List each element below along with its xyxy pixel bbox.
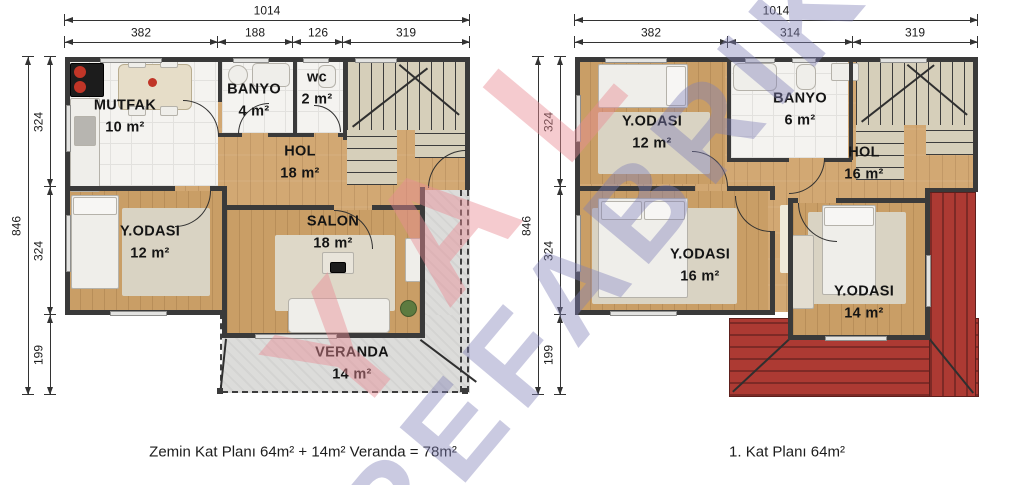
caption-first-floor: 1. Kat Planı 64m² bbox=[729, 444, 845, 461]
dim-tick bbox=[22, 394, 34, 395]
dim-segment bbox=[50, 315, 51, 395]
window bbox=[355, 58, 397, 63]
dim-tick bbox=[22, 56, 34, 57]
dim-segment bbox=[560, 187, 561, 315]
window bbox=[605, 58, 667, 63]
sofa bbox=[288, 298, 390, 333]
room-label-yodasi1: Y.ODASI 12 m² bbox=[622, 111, 682, 155]
dim-segment bbox=[575, 42, 728, 43]
room-area: 18 m² bbox=[280, 163, 319, 185]
dim-label: 382 bbox=[638, 26, 664, 39]
dim-segment bbox=[560, 57, 561, 187]
room-name: Y.ODASI bbox=[120, 221, 180, 243]
floor-plan-sheet: MUTFAK 10 m² BANYO 4 m² wc 2 m² HOL 18 m… bbox=[0, 0, 1024, 485]
dim-total-height bbox=[28, 57, 29, 395]
room-name: wc bbox=[301, 67, 332, 89]
veranda-post bbox=[217, 388, 223, 394]
room-name: HOL bbox=[280, 141, 319, 163]
wall bbox=[836, 198, 930, 203]
window bbox=[233, 58, 269, 63]
dim-tick bbox=[217, 36, 218, 48]
room-area: 18 m² bbox=[307, 233, 359, 255]
room-area: 14 m² bbox=[315, 364, 389, 386]
window bbox=[255, 334, 337, 339]
room-name: VERANDA bbox=[315, 342, 389, 364]
wall bbox=[973, 57, 978, 192]
wall bbox=[222, 205, 334, 210]
dim-label: 382 bbox=[128, 26, 154, 39]
dim-segment bbox=[343, 42, 470, 43]
room-area: 16 m² bbox=[670, 266, 730, 288]
dim-tick bbox=[554, 56, 566, 57]
dim-tick bbox=[532, 394, 544, 395]
bath-sink bbox=[831, 63, 859, 81]
room-label-salon: SALON 18 m² bbox=[307, 211, 359, 255]
dim-total-width bbox=[65, 20, 470, 21]
room-label-hol: HOL 16 m² bbox=[844, 142, 883, 186]
room-label-yodasi3: Y.ODASI 14 m² bbox=[834, 281, 894, 325]
dim-tick bbox=[44, 186, 56, 187]
dim-tick bbox=[342, 36, 343, 48]
dim-label: 188 bbox=[242, 26, 268, 39]
window bbox=[926, 255, 931, 307]
dim-tick bbox=[977, 36, 978, 48]
pillow bbox=[644, 201, 685, 220]
window bbox=[110, 311, 167, 316]
pillow bbox=[666, 66, 686, 106]
room-name: BANYO bbox=[773, 88, 827, 110]
dim-label: 324 bbox=[32, 109, 45, 135]
window bbox=[66, 105, 71, 152]
dim-tick bbox=[292, 36, 293, 48]
dim-segment bbox=[65, 42, 218, 43]
room-name: Y.ODASI bbox=[622, 111, 682, 133]
wall bbox=[343, 60, 347, 140]
dim-tick bbox=[469, 36, 470, 48]
toilet bbox=[796, 64, 816, 90]
room-area: 6 m² bbox=[773, 110, 827, 132]
veranda-dashed-edge bbox=[460, 190, 462, 392]
veranda-post bbox=[462, 388, 468, 394]
dim-segment bbox=[50, 57, 51, 187]
dim-label: 324 bbox=[542, 109, 555, 135]
laptop bbox=[330, 262, 346, 273]
stove-burner bbox=[74, 81, 86, 93]
wall bbox=[372, 205, 425, 210]
dim-segment bbox=[560, 315, 561, 395]
veranda-dashed-edge bbox=[467, 190, 469, 392]
dim-tick bbox=[64, 36, 65, 48]
window bbox=[792, 58, 816, 63]
dim-segment bbox=[728, 42, 853, 43]
window bbox=[100, 58, 162, 63]
room-area: 12 m² bbox=[622, 133, 682, 155]
wall bbox=[727, 186, 775, 191]
room-name: Y.ODASI bbox=[834, 281, 894, 303]
dim-tick bbox=[574, 36, 575, 48]
wall bbox=[727, 60, 731, 162]
room-name: BANYO bbox=[227, 79, 281, 101]
wall bbox=[930, 188, 978, 192]
wall bbox=[293, 60, 297, 137]
room-area: 16 m² bbox=[844, 164, 883, 186]
room-name: SALON bbox=[307, 211, 359, 233]
dim-tick bbox=[574, 14, 575, 26]
window bbox=[576, 95, 581, 142]
wall bbox=[788, 198, 798, 203]
bathtub bbox=[733, 63, 777, 91]
dim-total-height bbox=[538, 57, 539, 395]
window bbox=[66, 215, 71, 272]
wall bbox=[770, 231, 775, 315]
stairs-lower-flight bbox=[347, 130, 397, 185]
window bbox=[825, 336, 887, 341]
dim-label: 1014 bbox=[251, 4, 284, 17]
dim-segment bbox=[50, 187, 51, 315]
room-name: HOL bbox=[844, 142, 883, 164]
room-name: MUTFAK bbox=[94, 95, 156, 117]
room-area: 4 m² bbox=[227, 101, 281, 123]
dim-segment bbox=[218, 42, 293, 43]
dim-tick bbox=[44, 314, 56, 315]
dim-label: 319 bbox=[902, 26, 928, 39]
wall bbox=[218, 60, 222, 102]
pillow bbox=[601, 201, 642, 220]
room-area: 10 m² bbox=[94, 117, 156, 139]
armchair bbox=[405, 238, 421, 282]
dim-tick bbox=[469, 14, 470, 26]
stairs-landing bbox=[926, 125, 973, 155]
room-label-yodasi: Y.ODASI 12 m² bbox=[120, 221, 180, 265]
dim-label: 846 bbox=[10, 213, 23, 239]
caption-ground-floor: Zemin Kat Planı 64m² + 14m² Veranda = 78… bbox=[149, 444, 457, 461]
pillow bbox=[73, 197, 117, 215]
room-area: 2 m² bbox=[301, 89, 332, 111]
room-name: Y.ODASI bbox=[670, 244, 730, 266]
dim-label: 324 bbox=[542, 238, 555, 264]
wall bbox=[268, 133, 314, 137]
dim-label: 126 bbox=[305, 26, 331, 39]
dim-total-width bbox=[575, 20, 978, 21]
dim-label: 314 bbox=[777, 26, 803, 39]
wall bbox=[575, 186, 695, 191]
window bbox=[880, 58, 927, 63]
window bbox=[745, 58, 775, 63]
wall bbox=[788, 203, 793, 340]
dim-tick bbox=[64, 14, 65, 26]
room-label-mutfak: MUTFAK 10 m² bbox=[94, 95, 156, 139]
veranda-dashed-edge bbox=[222, 391, 468, 393]
chair bbox=[160, 106, 178, 116]
stove-burner bbox=[74, 66, 86, 78]
dim-tick bbox=[44, 56, 56, 57]
veranda-slab-side bbox=[425, 190, 470, 315]
kitchen-sink bbox=[74, 116, 96, 146]
dim-tick bbox=[977, 14, 978, 26]
dim-label: 1014 bbox=[760, 4, 793, 17]
dim-tick bbox=[727, 36, 728, 48]
wall bbox=[338, 133, 347, 137]
dim-tick bbox=[532, 56, 544, 57]
room-label-wc: wc 2 m² bbox=[301, 67, 332, 111]
wall bbox=[727, 158, 789, 162]
room-label-banyo: BANYO 6 m² bbox=[773, 88, 827, 132]
dim-tick bbox=[852, 36, 853, 48]
room-area: 12 m² bbox=[120, 243, 180, 265]
window bbox=[610, 311, 677, 316]
closet bbox=[792, 235, 814, 309]
wall bbox=[65, 186, 175, 191]
plant bbox=[400, 300, 417, 317]
dim-tick bbox=[554, 394, 566, 395]
room-label-veranda: VERANDA 14 m² bbox=[315, 342, 389, 386]
room-label-yodasi2: Y.ODASI 16 m² bbox=[670, 244, 730, 288]
stairs bbox=[347, 62, 465, 130]
window bbox=[303, 58, 329, 63]
dim-segment bbox=[293, 42, 343, 43]
dim-label: 199 bbox=[542, 342, 555, 368]
window bbox=[576, 215, 581, 272]
table-decor bbox=[148, 78, 157, 87]
dim-tick bbox=[554, 314, 566, 315]
room-label-banyo: BANYO 4 m² bbox=[227, 79, 281, 123]
dim-label: 199 bbox=[32, 342, 45, 368]
dim-label: 319 bbox=[393, 26, 419, 39]
dim-tick bbox=[44, 394, 56, 395]
dim-label: 324 bbox=[32, 238, 45, 264]
dim-label: 846 bbox=[520, 213, 533, 239]
room-area: 14 m² bbox=[834, 303, 894, 325]
dim-segment bbox=[853, 42, 978, 43]
dim-tick bbox=[554, 186, 566, 187]
room-label-hol: HOL 18 m² bbox=[280, 141, 319, 185]
